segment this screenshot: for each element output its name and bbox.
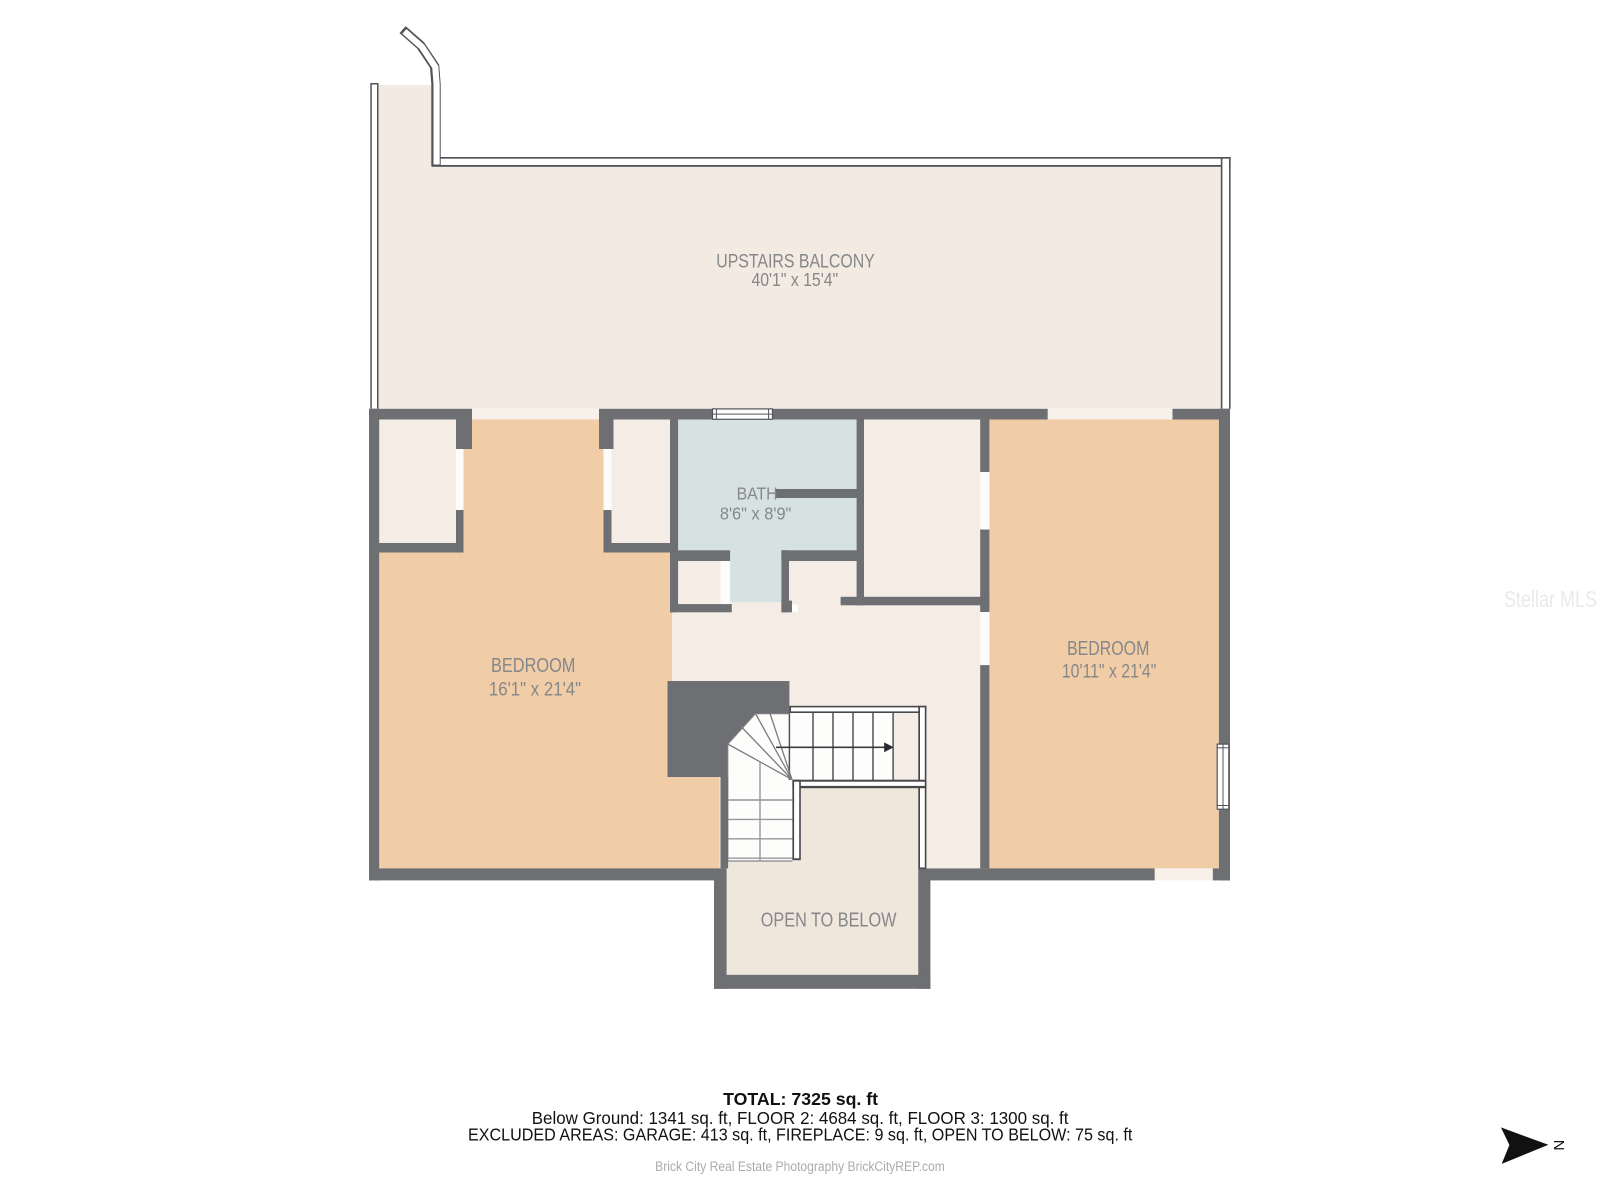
svg-text:EXCLUDED AREAS: GARAGE: 413 sq: EXCLUDED AREAS: GARAGE: 413 sq. ft, FIRE…	[468, 1124, 1132, 1144]
svg-text:16'1" x 21'4": 16'1" x 21'4"	[489, 680, 581, 701]
svg-text:10'11" x 21'4": 10'11" x 21'4"	[1062, 661, 1157, 682]
svg-text:Brick City Real Estate Photogr: Brick City Real Estate Photography Brick…	[655, 1159, 945, 1174]
svg-text:OPEN TO BELOW: OPEN TO BELOW	[761, 909, 897, 931]
svg-text:40'1" x 15'4": 40'1" x 15'4"	[751, 269, 838, 290]
svg-text:N: N	[1550, 1140, 1567, 1151]
svg-text:BATH: BATH	[737, 484, 778, 504]
svg-text:TOTAL: 7325 sq. ft: TOTAL: 7325 sq. ft	[723, 1089, 878, 1109]
svg-text:Stellar MLS: Stellar MLS	[1504, 586, 1597, 612]
svg-text:BEDROOM: BEDROOM	[491, 654, 575, 677]
svg-text:8'6" x 8'9": 8'6" x 8'9"	[720, 503, 792, 523]
svg-text:BEDROOM: BEDROOM	[1067, 637, 1149, 660]
